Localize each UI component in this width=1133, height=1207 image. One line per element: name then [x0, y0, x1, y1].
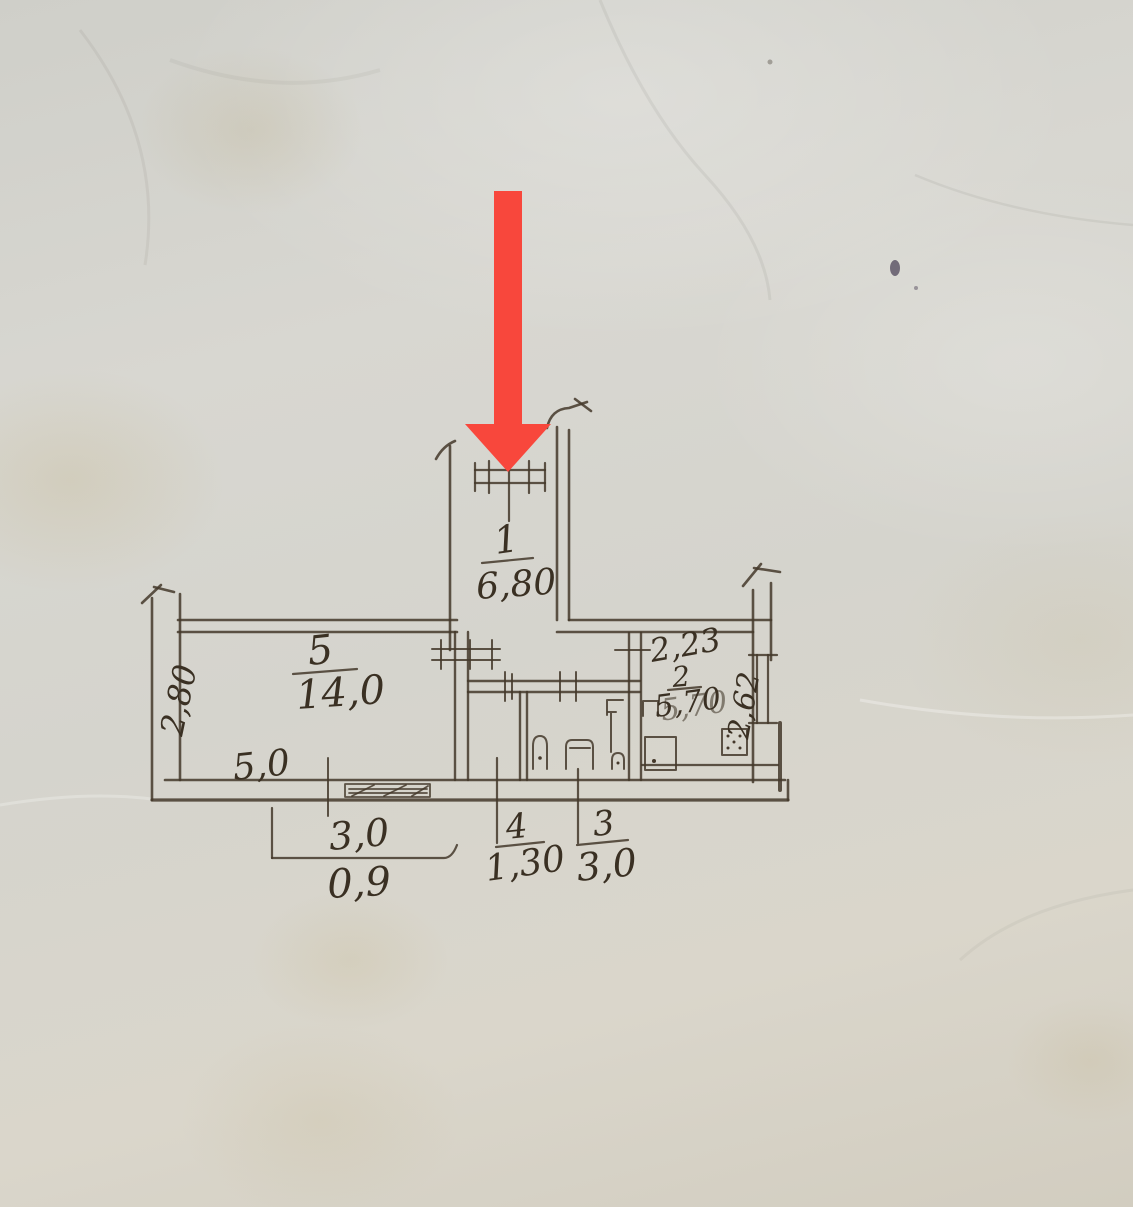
- bottom-window-width-dim: 3,0: [327, 810, 391, 859]
- room5-doorway-marks: [432, 640, 500, 669]
- floor-plan-sketch: 1 6,80 5 14,0 5,0 2,80 3,0 0,9 4 1,30 3 …: [0, 0, 1133, 1207]
- room-4-area-label: 1,30: [483, 838, 568, 890]
- pipe-riser: [608, 712, 616, 752]
- room-3-area-label: 3,0: [574, 840, 639, 890]
- wall-break-symbol: [547, 402, 587, 428]
- room5-depth-dim: 2,80: [152, 661, 204, 740]
- room-3-number-label: 3: [591, 803, 617, 845]
- toilet-fixture: [533, 736, 547, 769]
- room-1-number-label: 1: [491, 516, 521, 563]
- bottom-wall-window: [345, 784, 430, 797]
- room-5-number-label: 5: [305, 627, 335, 675]
- room-4-number-label: 4: [503, 806, 530, 848]
- washbasin-fixture: [566, 740, 593, 769]
- red-arrow-annotation: [465, 191, 551, 472]
- paper-creases: [0, 0, 1133, 960]
- room-5-area-label: 14,0: [294, 667, 386, 719]
- room2-depth-dim: 2,62: [721, 670, 767, 743]
- wall-break-symbol: [743, 564, 761, 586]
- aged-paper-background: 1 6,80 5 14,0 5,0 2,80 3,0 0,9 4 1,30 3 …: [0, 0, 1133, 1207]
- ink-blot: [890, 260, 900, 276]
- bottom-offset-dim: 0,9: [326, 859, 392, 908]
- wall-break-symbol: [436, 441, 455, 459]
- labels: 1 6,80 5 14,0 5,0 2,80 3,0 0,9 4 1,30 3 …: [152, 516, 767, 908]
- room-1-area-label: 6,80: [475, 561, 558, 607]
- room1-window: [475, 461, 545, 521]
- corridor-door-marks: [505, 672, 576, 701]
- room5-width-dim: 5,0: [231, 742, 292, 789]
- pedestal-fixture: [612, 753, 624, 769]
